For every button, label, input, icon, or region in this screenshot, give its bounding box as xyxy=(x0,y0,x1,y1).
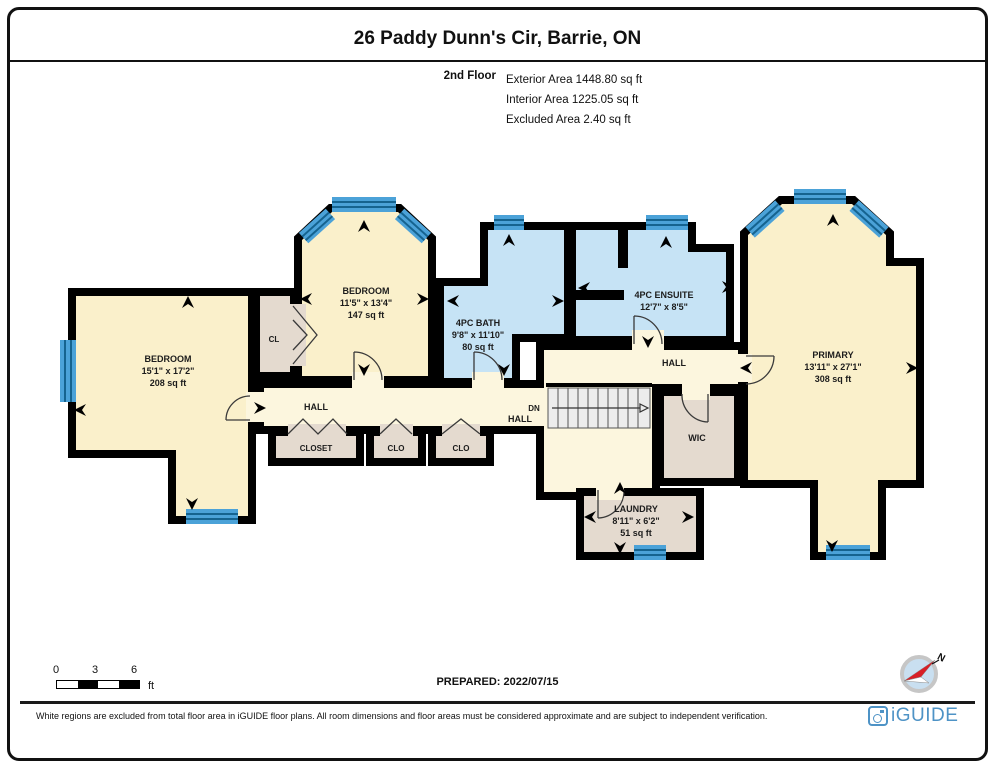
label-hall-center: HALL xyxy=(508,414,532,424)
label-primary-name: PRIMARY xyxy=(812,350,853,360)
window-bedroom-left-wall xyxy=(60,340,76,402)
label-clo1: CLO xyxy=(388,444,405,453)
prepared-date: PREPARED: 2022/07/15 xyxy=(0,676,995,688)
label-primary-dims: 13'11" x 27'1" xyxy=(804,362,861,372)
label-primary-area: 308 sq ft xyxy=(815,374,852,384)
room-ensuite xyxy=(576,230,726,336)
label-bedroom-mid-dims: 11'5" x 13'4" xyxy=(340,298,392,308)
label-hall-right: HALL xyxy=(662,358,686,368)
scale-6: 6 xyxy=(131,664,137,676)
disclaimer-text: White regions are excluded from total fl… xyxy=(36,711,806,721)
window-bath xyxy=(494,215,524,230)
iguide-logo-icon xyxy=(868,706,888,726)
label-laundry-name: LAUNDRY xyxy=(614,504,658,514)
floorplan-page: 26 Paddy Dunn's Cir, Barrie, ON 2nd Floo… xyxy=(0,0,995,768)
stairs xyxy=(546,385,652,428)
label-ensuite-dims: 12'7" x 8'5" xyxy=(640,302,688,312)
wall-ensuite-partition-h xyxy=(576,290,624,300)
label-bedroom-left-area: 208 sq ft xyxy=(150,378,187,388)
room-bedroom-left xyxy=(76,296,248,516)
iguide-logo-text: iGUIDE xyxy=(891,705,958,727)
iguide-logo: iGUIDE xyxy=(868,705,958,727)
compass-icon: N xyxy=(894,646,948,700)
scale-0: 0 xyxy=(53,664,59,676)
label-ensuite-name: 4PC ENSUITE xyxy=(634,290,693,300)
label-laundry-area: 51 sq ft xyxy=(620,528,652,538)
label-bedroom-left-dims: 15'1" x 17'2" xyxy=(142,366,195,376)
label-dn: DN xyxy=(528,404,540,413)
window-ensuite xyxy=(646,215,688,230)
label-laundry-dims: 8'11" x 6'2" xyxy=(612,516,659,526)
label-bath-dims: 9'8" x 11'10" xyxy=(452,330,504,340)
room-cl xyxy=(260,296,290,372)
window-laundry xyxy=(634,545,666,560)
label-bath-area: 80 sq ft xyxy=(462,342,494,352)
scale-3: 3 xyxy=(92,664,98,676)
footer-divider xyxy=(20,701,975,704)
label-bedroom-mid-area: 147 sq ft xyxy=(348,310,385,320)
label-wic: WIC xyxy=(688,433,706,443)
compass-north-label: N xyxy=(935,652,947,665)
label-bath-name: 4PC BATH xyxy=(456,318,500,328)
label-bedroom-mid-name: BEDROOM xyxy=(343,286,390,296)
floor-plan: BEDROOM 15'1" x 17'2" 208 sq ft BEDROOM … xyxy=(0,0,995,768)
wall-ensuite-partition-v xyxy=(618,230,628,268)
label-cl: CL xyxy=(269,335,280,344)
label-hall-left: HALL xyxy=(304,402,328,412)
label-closet: CLOSET xyxy=(300,444,333,453)
label-clo2: CLO xyxy=(453,444,470,453)
window-bedroom-left-bottom xyxy=(186,509,238,524)
label-bedroom-left-name: BEDROOM xyxy=(145,354,192,364)
